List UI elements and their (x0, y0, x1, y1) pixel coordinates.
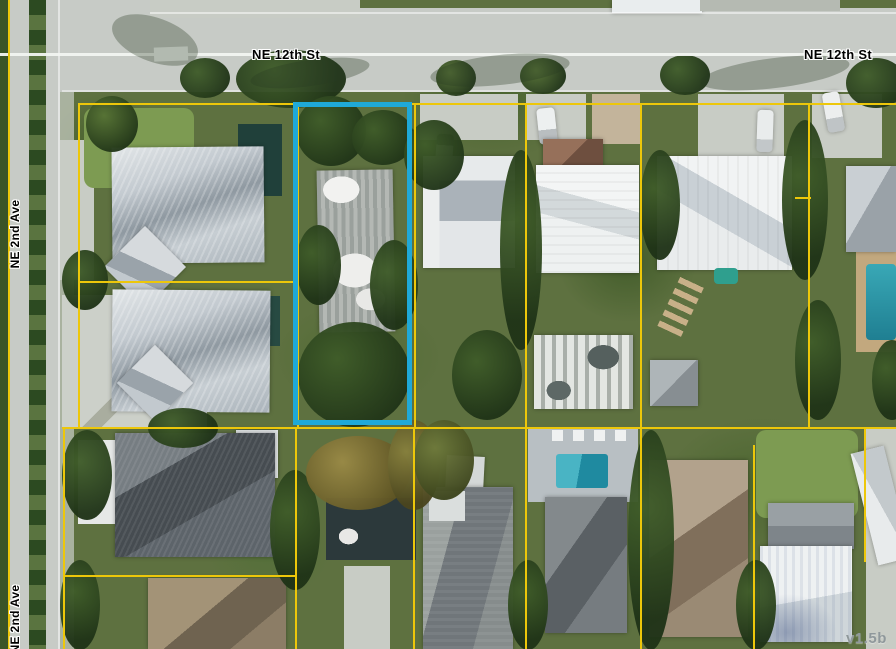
paver-driveway (592, 94, 640, 144)
parcel-boundary-line (63, 575, 295, 577)
pavement (700, 0, 840, 11)
parcel-boundary-line (864, 427, 866, 562)
tree-canopy (872, 340, 896, 420)
street-label-ne-2nd-ave-lower: NE 2nd Ave (8, 580, 22, 649)
parcel-boundary-line (413, 427, 415, 649)
road-median (29, 0, 46, 649)
tree-canopy (414, 420, 474, 500)
spa-pool (714, 268, 738, 284)
parcel-boundary-line (525, 427, 527, 649)
tree-canopy (404, 120, 464, 190)
parcel-boundary-line (295, 427, 297, 649)
tree-canopy (452, 330, 522, 420)
shed-roof (650, 360, 698, 406)
house-roof (846, 166, 896, 252)
parcel-boundary-line (63, 427, 65, 649)
tree-canopy (508, 560, 548, 649)
tree-canopy (62, 430, 112, 520)
street-label-ne-2nd-ave-upper: NE 2nd Ave (8, 195, 22, 273)
house-roof (115, 433, 275, 557)
swimming-pool (556, 454, 608, 488)
tree-canopy (500, 150, 542, 350)
parcel-boundary-line (78, 281, 294, 283)
parcel-boundary-line (640, 427, 642, 649)
greenhouse-structure (534, 335, 633, 409)
grass-verge (0, 0, 8, 649)
tree-canopy (795, 300, 841, 420)
driveway (150, 0, 360, 18)
house-roof (545, 497, 627, 633)
parcel-boundary-line (640, 103, 642, 429)
parcel-boundary-line (78, 103, 896, 105)
curb-line (150, 12, 896, 14)
aerial-map[interactable]: NE 12th St NE 12th St NE 2nd Ave NE 2nd … (0, 0, 896, 649)
parcel-boundary-line (8, 0, 10, 649)
tree-canopy (782, 120, 828, 280)
tree-canopy (60, 560, 100, 649)
parcel-boundary-line (808, 103, 810, 429)
house-roof (148, 578, 286, 649)
house-roof (536, 165, 639, 273)
tree-canopy (660, 55, 710, 95)
shed-roof (768, 503, 854, 549)
driveway (344, 566, 390, 649)
street-label-ne-12th-st-left: NE 12th St (252, 47, 320, 62)
parcel-boundary-line (78, 103, 80, 429)
version-label: v1.5b (846, 630, 887, 647)
tree-canopy (640, 150, 680, 260)
parcel-boundary-line (414, 103, 416, 429)
stepping-stones (657, 275, 704, 337)
tree-canopy (62, 250, 108, 310)
parcel-boundary-line (62, 427, 896, 429)
tree-canopy (628, 430, 674, 649)
parcel-boundary-line (525, 103, 527, 429)
selected-parcel-highlight[interactable] (293, 102, 412, 425)
parcel-boundary-line (753, 445, 755, 649)
lounge-chairs (552, 430, 636, 441)
vehicle (756, 110, 773, 153)
street-label-ne-12th-st-right: NE 12th St (804, 47, 872, 62)
swimming-pool (866, 264, 896, 340)
tree-canopy (736, 560, 776, 649)
